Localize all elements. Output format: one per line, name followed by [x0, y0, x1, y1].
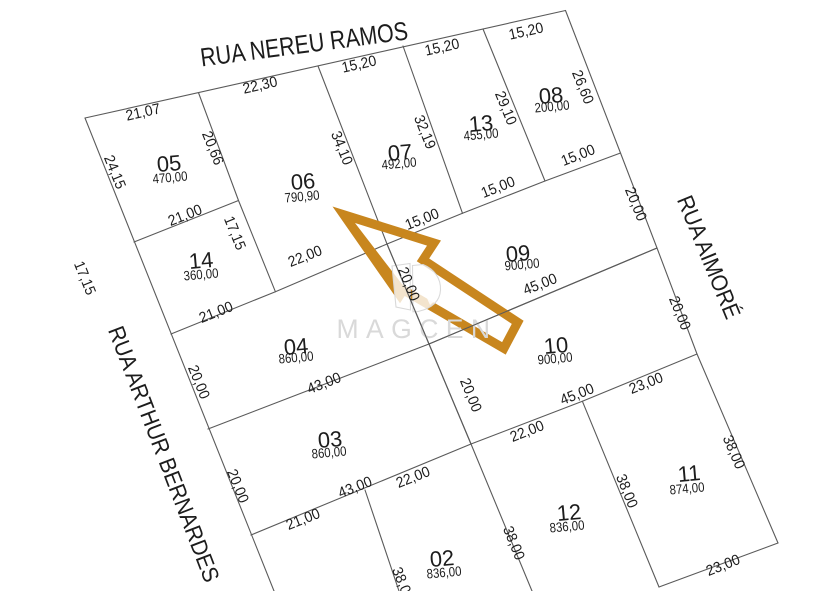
- svg-text:22,00: 22,00: [286, 242, 325, 271]
- svg-text:22,30: 22,30: [241, 73, 279, 97]
- svg-text:22,00: 22,00: [508, 417, 547, 446]
- svg-text:470,00: 470,00: [152, 169, 188, 187]
- svg-text:900,00: 900,00: [537, 350, 573, 368]
- svg-text:21,00: 21,00: [284, 505, 323, 534]
- svg-text:17,15: 17,15: [220, 214, 249, 253]
- svg-text:38,00: 38,00: [388, 565, 417, 591]
- svg-text:20,00: 20,00: [456, 376, 485, 415]
- svg-text:23,00: 23,00: [704, 551, 743, 580]
- svg-text:20,00: 20,00: [184, 363, 213, 402]
- svg-text:492,00: 492,00: [381, 155, 417, 173]
- svg-text:29,10: 29,10: [491, 89, 520, 128]
- svg-text:MAGCEN: MAGCEN: [337, 314, 498, 344]
- svg-text:RUA ARTHUR BERNARDES: RUA ARTHUR BERNARDES: [103, 322, 225, 585]
- svg-text:43,00: 43,00: [336, 473, 375, 502]
- svg-text:15,20: 15,20: [340, 52, 378, 76]
- svg-text:22,00: 22,00: [394, 463, 433, 492]
- svg-text:860,00: 860,00: [311, 444, 347, 462]
- svg-text:15,20: 15,20: [423, 35, 461, 59]
- svg-text:38,00: 38,00: [499, 524, 528, 563]
- svg-text:836,00: 836,00: [549, 518, 585, 536]
- svg-text:20,00: 20,00: [223, 467, 252, 506]
- svg-text:17,15: 17,15: [70, 259, 99, 298]
- svg-text:45,00: 45,00: [558, 380, 597, 409]
- svg-text:43,00: 43,00: [305, 369, 344, 398]
- svg-text:15,00: 15,00: [479, 173, 518, 202]
- svg-text:38,00: 38,00: [719, 433, 748, 472]
- svg-text:45,00: 45,00: [521, 270, 560, 299]
- svg-text:20,66: 20,66: [198, 129, 227, 168]
- svg-text:34,10: 34,10: [327, 129, 356, 168]
- svg-text:26,60: 26,60: [568, 68, 597, 107]
- svg-text:21,00: 21,00: [166, 201, 205, 230]
- svg-text:836,00: 836,00: [426, 564, 462, 582]
- svg-text:15,20: 15,20: [507, 19, 545, 43]
- svg-text:900,00: 900,00: [504, 256, 540, 274]
- svg-text:24,15: 24,15: [100, 153, 129, 192]
- svg-text:23,00: 23,00: [627, 369, 666, 398]
- svg-text:RUA NEREU RAMOS: RUA NEREU RAMOS: [199, 15, 410, 72]
- svg-text:38,00: 38,00: [612, 472, 641, 511]
- svg-text:200,00: 200,00: [534, 98, 570, 116]
- svg-text:860,00: 860,00: [278, 349, 314, 367]
- svg-text:790,90: 790,90: [284, 188, 320, 206]
- svg-text:32,19: 32,19: [410, 113, 439, 152]
- svg-text:455,00: 455,00: [463, 126, 499, 144]
- svg-text:15,00: 15,00: [559, 141, 598, 170]
- svg-text:874,00: 874,00: [669, 480, 705, 498]
- svg-text:21,00: 21,00: [197, 298, 236, 327]
- svg-text:20,00: 20,00: [621, 185, 650, 224]
- svg-text:21,07: 21,07: [124, 100, 162, 124]
- svg-text:360,00: 360,00: [183, 266, 219, 284]
- svg-text:20,00: 20,00: [665, 294, 694, 333]
